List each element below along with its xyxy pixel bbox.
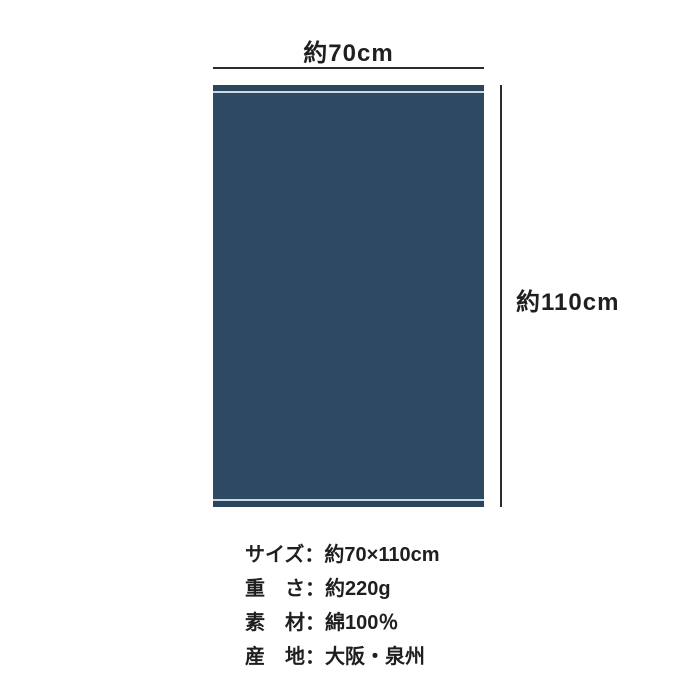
spec-value: 約70×110cm <box>324 544 439 566</box>
spec-value: 綿100％ <box>325 612 398 634</box>
spec-row-size: サイズ：約70×110cm <box>245 538 440 572</box>
width-dimension-label: 約70cm <box>213 33 484 68</box>
product-size-diagram: 約70cm 約110cm サイズ：約70×110cm 重 さ：約220g 素 材… <box>0 0 700 700</box>
spec-row-material: 素 材：綿100％ <box>245 606 440 640</box>
spec-label: 素 材 <box>245 612 305 634</box>
spec-label: 重 さ <box>245 578 305 600</box>
spec-value: 約220g <box>325 578 391 600</box>
towel-illustration <box>213 85 484 507</box>
spec-separator: ： <box>305 578 325 600</box>
spec-value: 大阪・泉州 <box>325 646 425 668</box>
towel-body <box>213 93 484 499</box>
spec-separator: ： <box>305 612 325 634</box>
width-dimension-line <box>213 67 484 69</box>
spec-separator: ： <box>305 646 325 668</box>
height-dimension-label: 約110cm <box>516 282 619 317</box>
spec-row-origin: 産 地：大阪・泉州 <box>245 640 440 674</box>
towel-bottom-border-band <box>213 501 484 507</box>
spec-label: サイズ <box>245 544 304 566</box>
height-dimension-line <box>500 85 502 507</box>
spec-list: サイズ：約70×110cm 重 さ：約220g 素 材：綿100％ 産 地：大阪… <box>245 538 440 674</box>
spec-label: 産 地 <box>245 646 305 668</box>
spec-row-weight: 重 さ：約220g <box>245 572 440 606</box>
spec-separator: ： <box>304 544 324 566</box>
